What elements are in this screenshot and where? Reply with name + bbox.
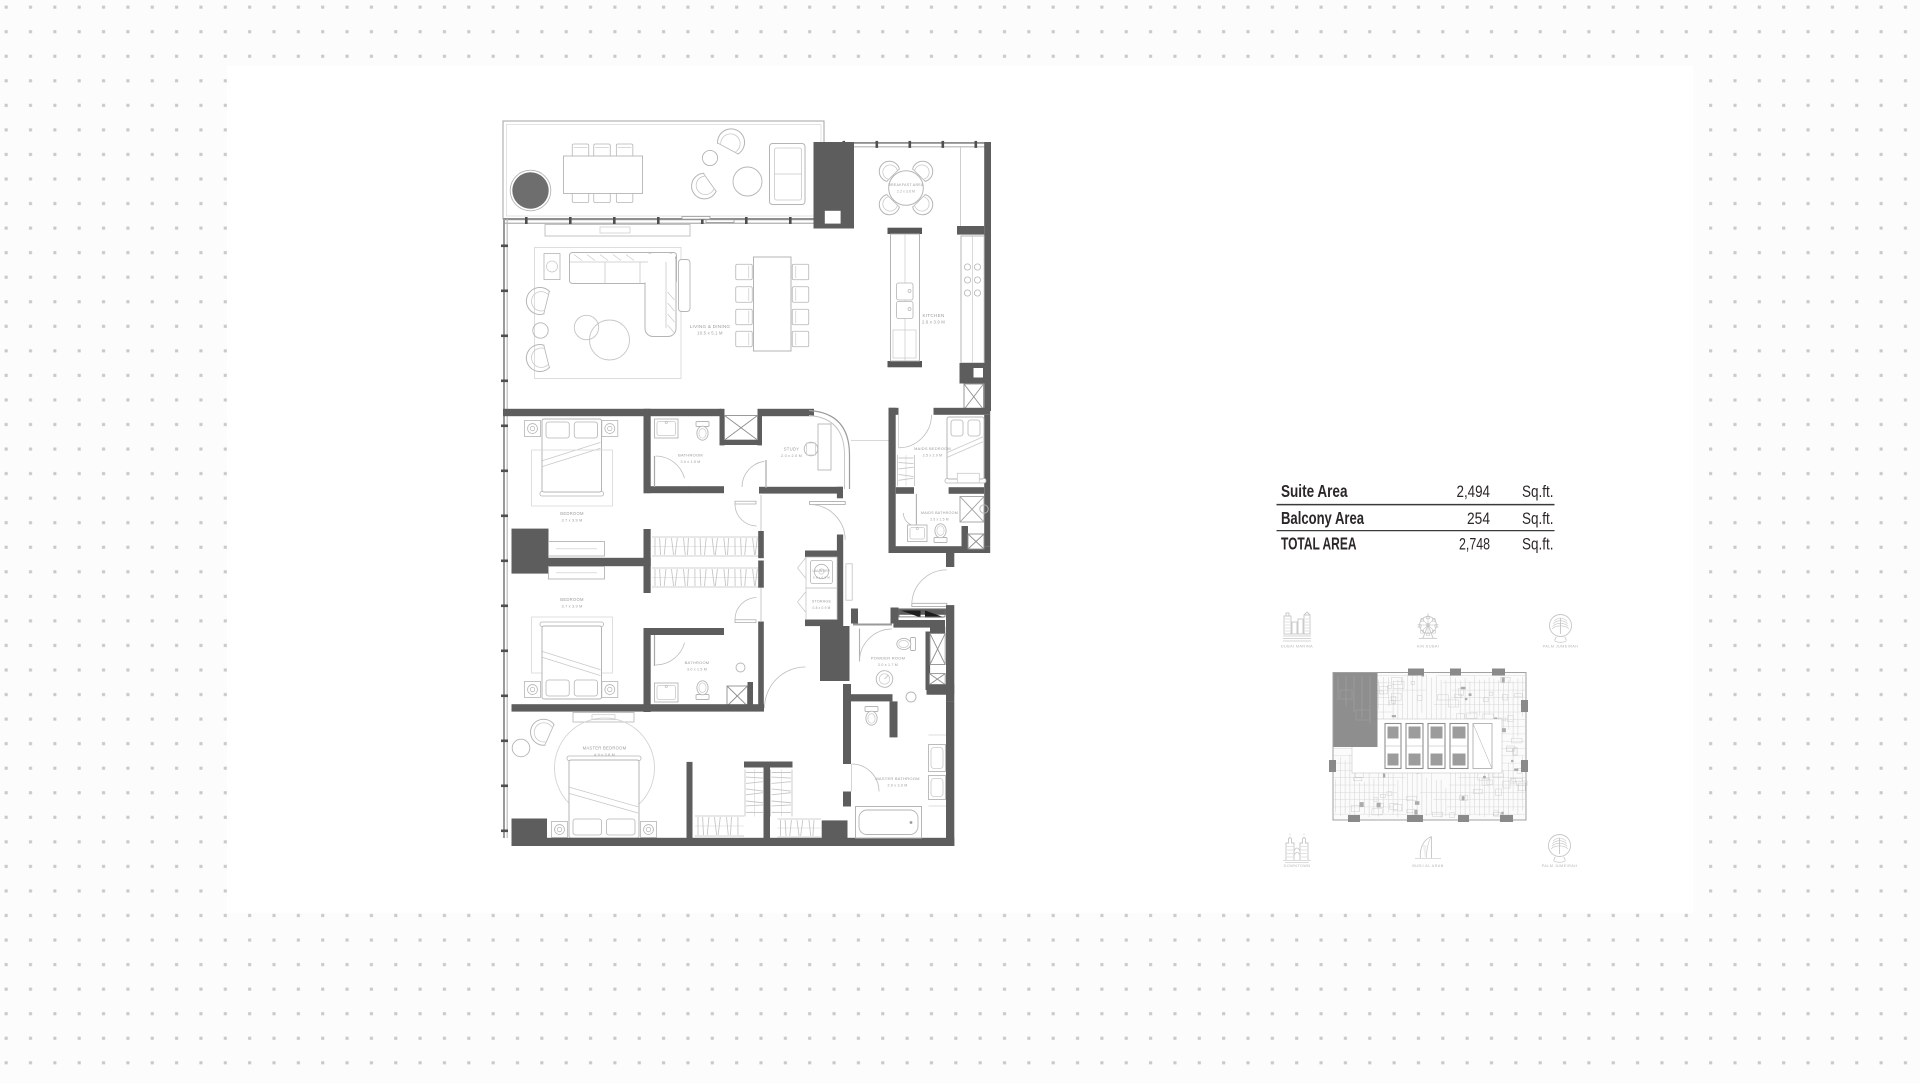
svg-text:STUDY: STUDY [784,447,799,452]
svg-text:2,494: 2,494 [1457,482,1491,501]
svg-text:PALM JUMEIRAH: PALM JUMEIRAH [1543,645,1579,649]
svg-text:KITCHEN: KITCHEN [923,313,945,318]
svg-text:DUBAI MARINA: DUBAI MARINA [1281,645,1313,649]
svg-text:MAIDS BEDROOM: MAIDS BEDROOM [914,446,951,451]
svg-text:STORAGE: STORAGE [812,600,832,604]
svg-text:Sq.ft.: Sq.ft. [1522,535,1554,554]
svg-text:2.5 x 1.5 M: 2.5 x 1.5 M [930,517,949,521]
svg-text:Sq.ft.: Sq.ft. [1522,509,1554,528]
svg-text:Suite Area: Suite Area [1281,481,1348,501]
svg-text:AIN DUBAI: AIN DUBAI [1417,645,1440,649]
svg-text:3.7 x 3.9 M: 3.7 x 3.9 M [562,604,583,608]
svg-text:DOWNTOWN: DOWNTOWN [1284,864,1311,868]
svg-text:LAUNDRY: LAUNDRY [813,569,831,573]
svg-text:4.9 x 3.8 M: 4.9 x 3.8 M [594,753,615,757]
svg-text:254: 254 [1467,509,1490,528]
svg-text:2.0 x 1.7 M: 2.0 x 1.7 M [878,663,898,667]
svg-text:Sq.ft.: Sq.ft. [1522,482,1554,501]
svg-text:POWDER ROOM: POWDER ROOM [871,656,905,661]
svg-text:BEDROOM: BEDROOM [560,511,584,516]
svg-text:BURJ AL ARAB: BURJ AL ARAB [1412,864,1443,868]
svg-text:MASTER BATHROOM: MASTER BATHROOM [875,776,919,781]
svg-text:BATHROOM: BATHROOM [678,453,703,458]
svg-text:TOTAL AREA: TOTAL AREA [1281,534,1357,554]
svg-text:LIVING & DINING: LIVING & DINING [690,324,731,329]
svg-text:3.7 x 3.9 M: 3.7 x 3.9 M [562,518,583,522]
svg-text:2.0 x 3.9 M: 2.0 x 3.9 M [888,783,908,787]
svg-text:BEDROOM: BEDROOM [560,597,584,602]
svg-text:BREAKFAST AREA: BREAKFAST AREA [888,183,924,187]
svg-text:MAIDS BATHROOM: MAIDS BATHROOM [921,511,958,515]
svg-text:2.6 x 3.9 M: 2.6 x 3.9 M [922,319,945,324]
svg-text:2.2 x 3.6 M: 2.2 x 3.6 M [897,190,915,194]
svg-text:PALM JUMEIRAH: PALM JUMEIRAH [1542,864,1578,868]
svg-text:MASTER BEDROOM: MASTER BEDROOM [583,746,627,751]
svg-text:0.8 x 0.9 M: 0.8 x 0.9 M [813,606,831,610]
svg-text:BATHROOM: BATHROOM [685,660,710,665]
svg-text:2.0 x 2.0 M: 2.0 x 2.0 M [781,454,802,458]
svg-text:3.0 x 1.5 M: 3.0 x 1.5 M [687,667,707,671]
svg-text:2,748: 2,748 [1459,535,1490,554]
svg-text:Balcony Area: Balcony Area [1281,508,1364,528]
svg-text:10.5 x 5.1 M: 10.5 x 5.1 M [697,330,723,335]
svg-text:0.8 x 0.6 M: 0.8 x 0.6 M [813,575,830,579]
svg-text:2.5 x 2.0 M: 2.5 x 2.0 M [923,453,943,457]
svg-text:3.0 x 1.5 M: 3.0 x 1.5 M [681,460,701,464]
